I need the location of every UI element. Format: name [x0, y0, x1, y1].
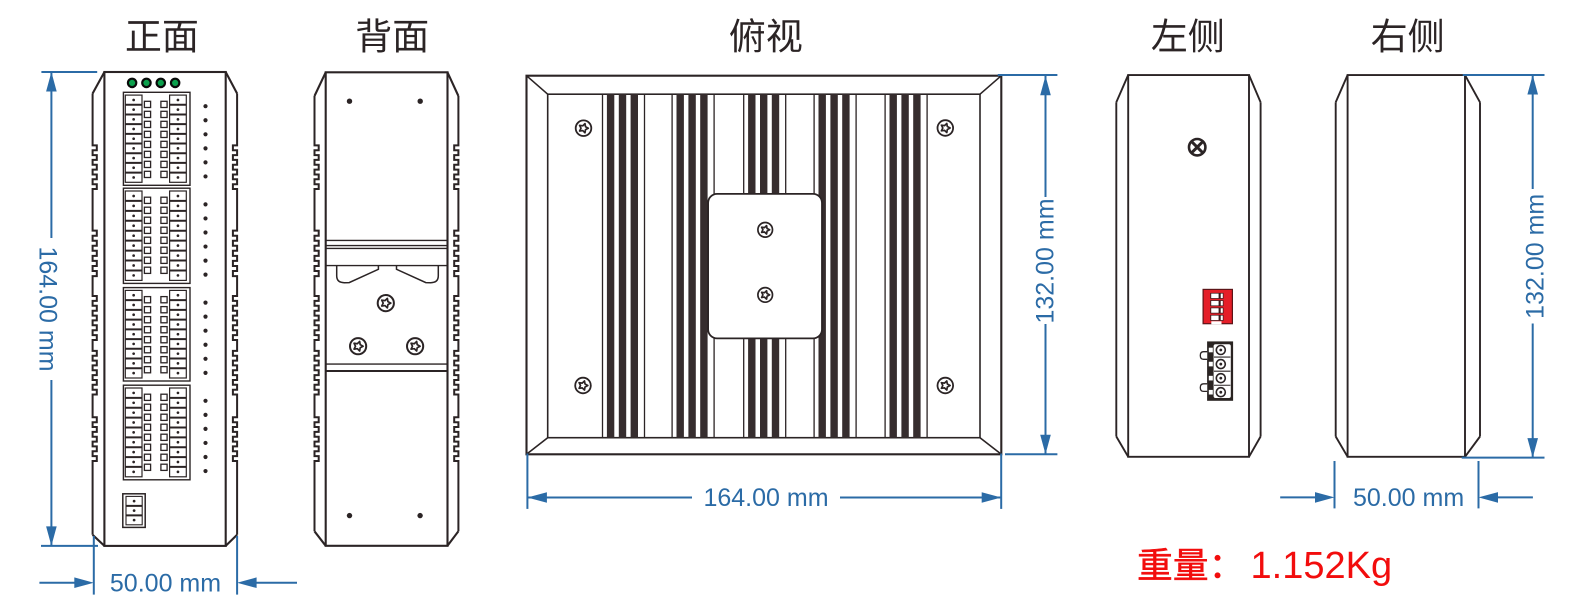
svg-text:132.00 mm: 132.00 mm: [1521, 194, 1549, 319]
svg-text:1.152Kg: 1.152Kg: [1251, 545, 1393, 587]
svg-text:164.00 mm: 164.00 mm: [34, 246, 62, 371]
svg-text:50.00 mm: 50.00 mm: [110, 569, 221, 597]
svg-text:164.00 mm: 164.00 mm: [703, 484, 828, 512]
svg-text:50.00 mm: 50.00 mm: [1353, 484, 1464, 512]
svg-text:132.00 mm: 132.00 mm: [1032, 198, 1060, 323]
